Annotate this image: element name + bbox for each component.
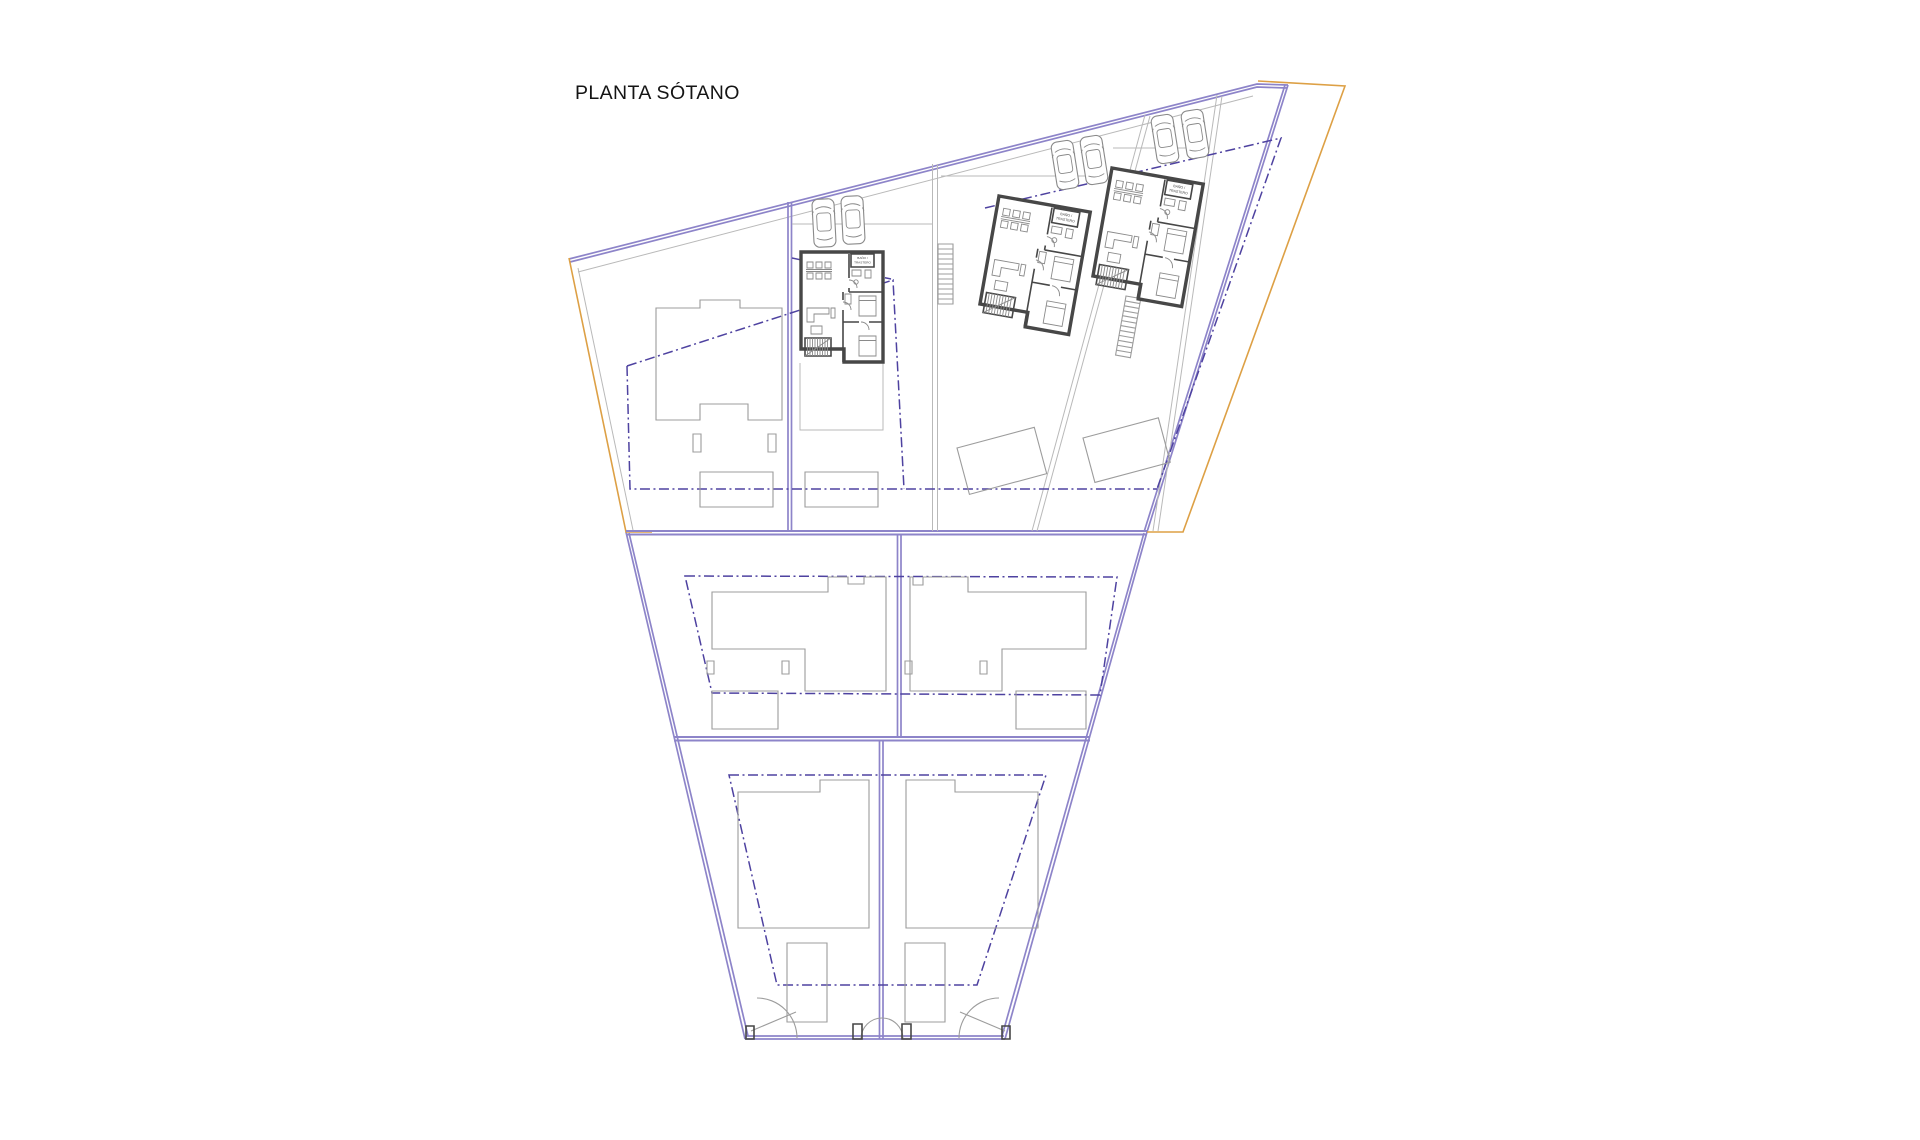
survey-line-orange <box>569 81 1345 532</box>
terrace-villa2 <box>957 427 1047 494</box>
site-boundary <box>569 81 1345 1039</box>
garage-outline-bottom-left <box>787 943 827 1022</box>
house-outline-middle-right <box>905 577 1086 691</box>
light-well <box>768 434 776 452</box>
garage-outline-middle-right <box>1016 691 1086 729</box>
house-outline-middle-left <box>707 577 886 691</box>
boundary-left-lower-inner <box>629 533 748 1036</box>
boundary-left-lower-outer <box>626 532 745 1039</box>
terrace-villa3 <box>1083 418 1170 483</box>
garage-outline-bottom-right <box>905 943 945 1022</box>
floor-plan-page: BAÑO / TRASTERO <box>0 0 1920 1140</box>
boundary-right-lower-inner <box>1002 533 1144 1036</box>
setback-bottom <box>729 775 1046 985</box>
light-well <box>980 661 987 674</box>
entrance-gate-right <box>959 998 1010 1039</box>
floor-plan-canvas: BAÑO / TRASTERO <box>0 0 1920 1140</box>
house-outline-topleft <box>656 300 782 452</box>
light-well <box>707 661 714 674</box>
setback-top-bottom <box>627 366 1157 489</box>
light-well <box>782 661 789 674</box>
house-outline-bottom-right <box>906 780 1038 928</box>
left-edge-inner-line <box>578 268 633 530</box>
light-well <box>693 434 701 452</box>
survey-left-edge <box>569 258 652 532</box>
parked-cars-pair-3 <box>1150 108 1210 164</box>
exterior-stairs-2 <box>1116 296 1141 358</box>
villa-basement-plan-3 <box>1090 168 1203 307</box>
entrance-gate-left <box>746 998 797 1039</box>
boundary-right-lower-outer <box>1005 532 1147 1039</box>
light-well <box>905 661 912 674</box>
parked-cars-pair-1 <box>811 195 865 247</box>
villa-basement-plan-1 <box>801 252 883 362</box>
villa1-terrace-outline <box>800 363 883 430</box>
house-outline-bottom-left <box>738 780 869 928</box>
garage-outline-middle-left <box>712 691 778 729</box>
plan-title: PLANTA SÓTANO <box>575 81 740 104</box>
villa-basement-plan-2 <box>977 196 1090 335</box>
exterior-stairs-1 <box>938 244 953 304</box>
parked-cars-pair-2 <box>1050 134 1109 190</box>
page-background <box>0 0 1920 1140</box>
